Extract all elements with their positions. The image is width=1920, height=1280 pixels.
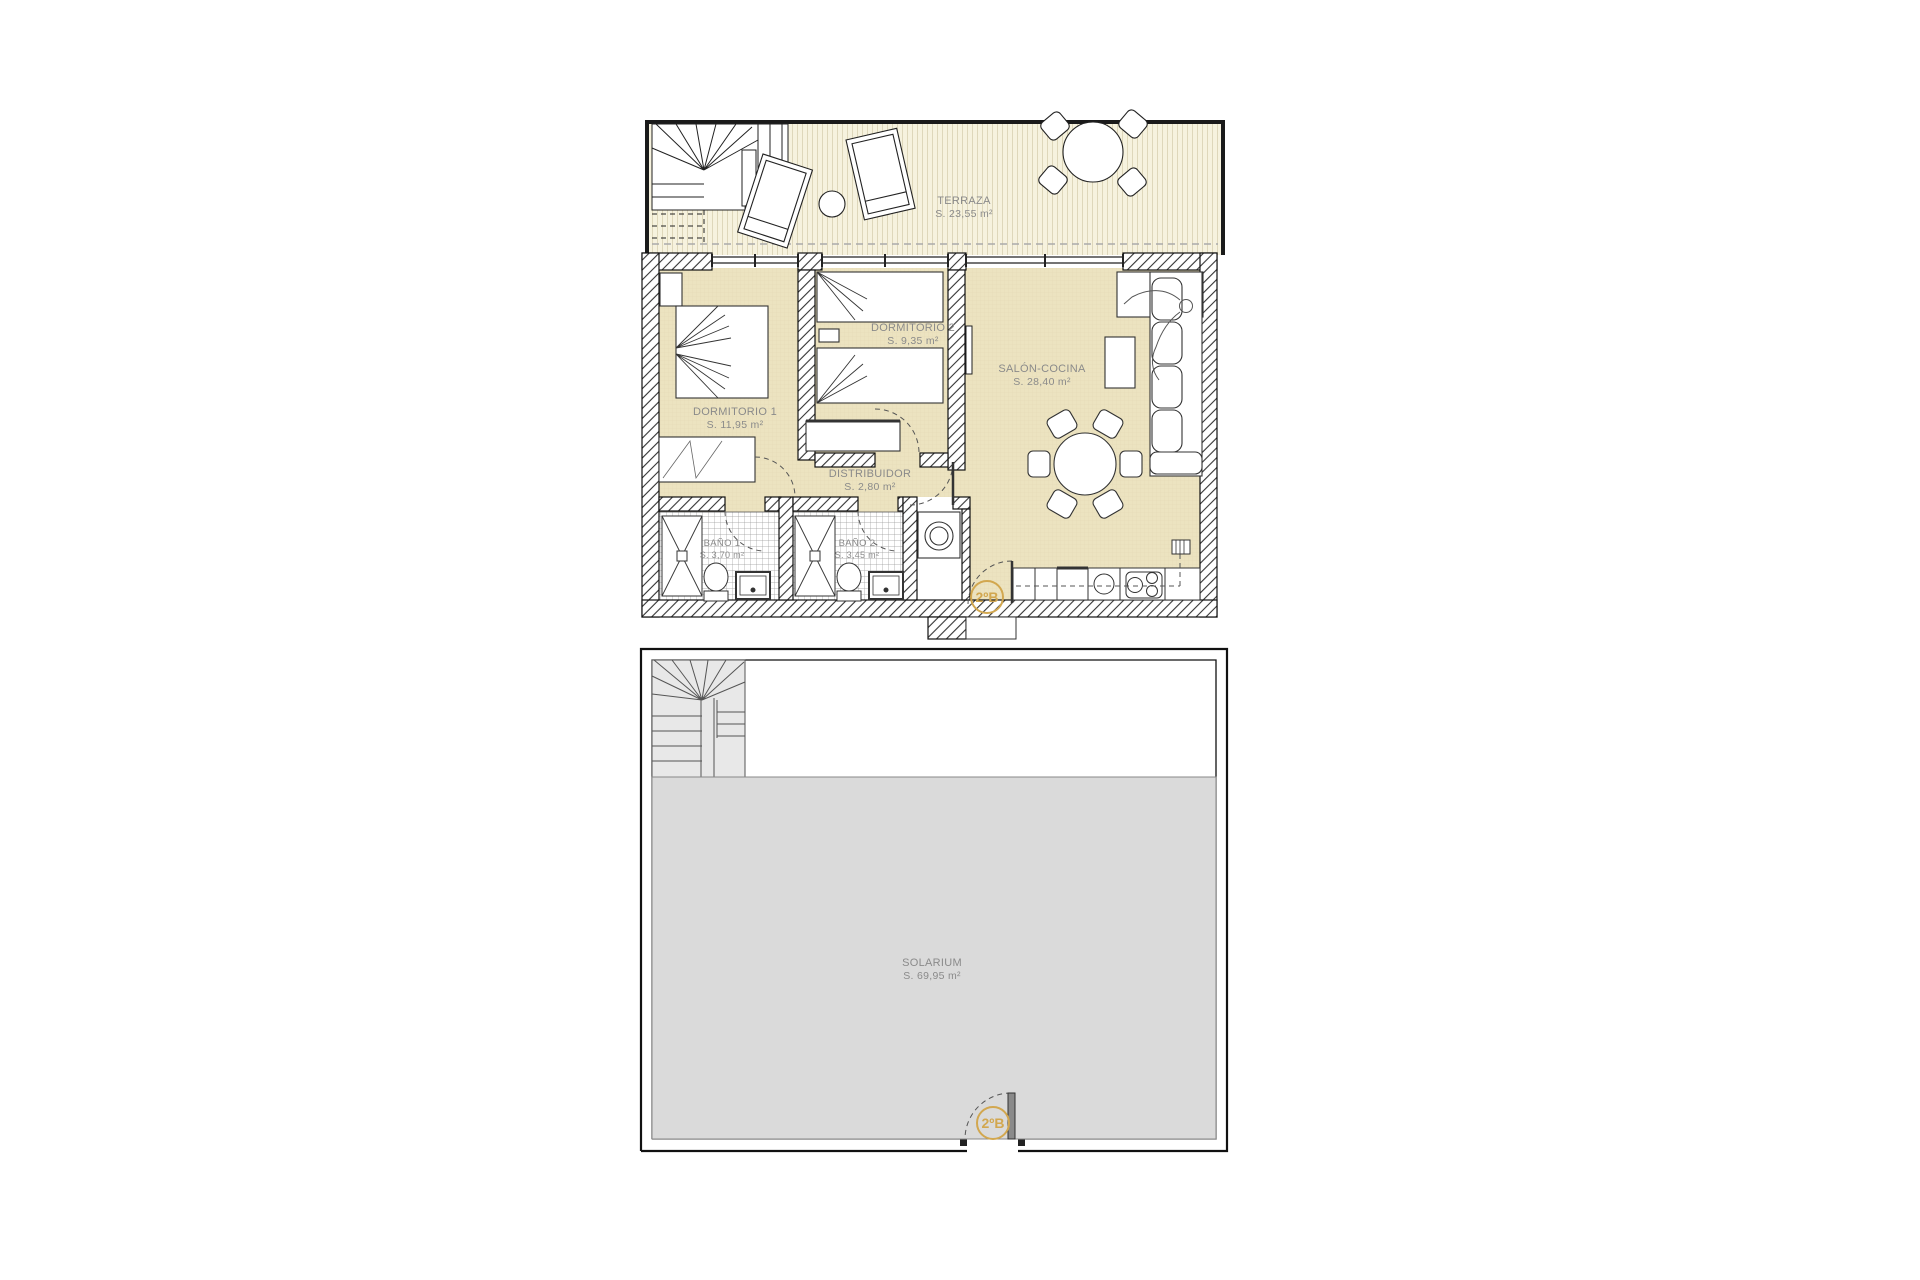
- floor-plan-page: TERRAZA S. 23,55 m² DORMITORIO 1 S. 11,9…: [0, 0, 1920, 1280]
- side-table: [819, 191, 845, 217]
- wardrobe: [660, 273, 682, 306]
- label-solarium: SOLARIUM S. 69,95 m²: [902, 957, 962, 983]
- closet: [659, 437, 755, 482]
- toilet: [704, 563, 728, 591]
- washer: [918, 512, 960, 558]
- floor-plan-canvas: [0, 0, 1920, 1280]
- unit-badge-upper: 2ºB: [970, 580, 1004, 614]
- unit-badge-lower: 2ºB: [976, 1106, 1010, 1140]
- lower-plan: [641, 649, 1227, 1151]
- label-dormitorio-1: DORMITORIO 1 S. 11,95 m²: [693, 406, 777, 432]
- label-dormitorio-2: DORMITORIO 2 S. 9,35 m²: [871, 322, 955, 348]
- windows: [712, 254, 1123, 267]
- label-distribuidor: DISTRIBUIDOR S. 2,80 m²: [829, 468, 911, 494]
- nightstand: [819, 329, 839, 342]
- label-terraza: TERRAZA S. 23,55 m²: [935, 195, 993, 221]
- toilet: [837, 563, 861, 591]
- coffee-table: [1105, 337, 1135, 388]
- tv-unit: [966, 326, 972, 374]
- entry-step: [966, 617, 1016, 639]
- label-bano-2: BAÑO 2 S. 3,45 m²: [835, 537, 880, 561]
- oven-tower: [1172, 540, 1190, 554]
- label-salon-cocina: SALÓN-COCINA S. 28,40 m²: [998, 363, 1085, 389]
- stairs-lower: [652, 660, 745, 777]
- label-bano-1: BAÑO 1 S. 3,70 m²: [700, 537, 745, 561]
- dresser: [806, 421, 900, 451]
